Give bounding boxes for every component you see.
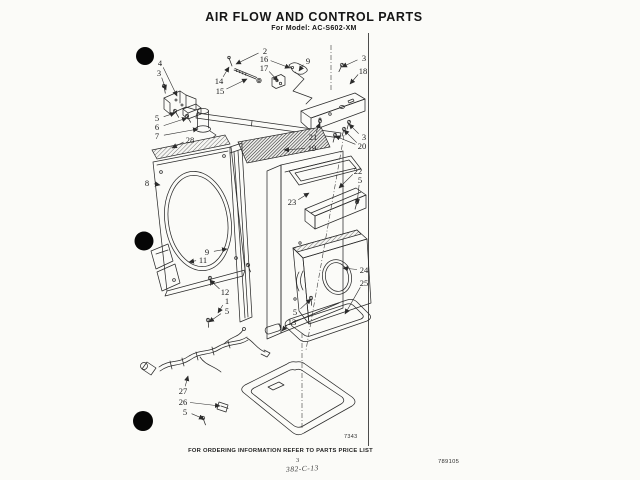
callouts-layer: 4356728821617141593182132019225239111215… xyxy=(145,46,369,419)
callout-leader-5 xyxy=(300,299,311,309)
callout-leader-3 xyxy=(342,60,358,67)
callout-leader-5 xyxy=(209,314,221,322)
callout-5: 5 xyxy=(358,175,362,185)
callout-21: 21 xyxy=(309,132,318,142)
callout-14: 14 xyxy=(215,76,224,86)
callout-leader-6 xyxy=(164,118,187,126)
callout-24: 24 xyxy=(360,265,369,275)
screw xyxy=(337,63,346,72)
callout-20: 20 xyxy=(358,141,367,151)
part-base-pan xyxy=(242,362,355,435)
callout-18: 18 xyxy=(359,66,368,76)
punch-hole xyxy=(135,232,154,251)
callout-5: 5 xyxy=(183,407,187,417)
screw xyxy=(352,200,361,209)
callout-5: 5 xyxy=(293,307,297,317)
callout-leader-9 xyxy=(299,65,303,71)
callout-leader-20 xyxy=(344,130,357,143)
callout-5: 5 xyxy=(225,306,229,316)
part-bracket-flaps xyxy=(151,244,180,291)
callout-15: 15 xyxy=(216,86,225,96)
callout-leader-9 xyxy=(214,249,227,251)
callout-25: 25 xyxy=(360,278,369,288)
part-mounting-bracket xyxy=(164,91,196,114)
callout-leader-23 xyxy=(298,193,309,200)
callout-8: 8 xyxy=(145,178,149,188)
callout-leader-22 xyxy=(339,174,353,188)
callout-leader-13 xyxy=(282,325,287,331)
handwritten-reference: 382-C-13 xyxy=(286,463,319,474)
part-inner-frame xyxy=(289,156,361,185)
callout-1: 1 xyxy=(225,296,229,306)
callout-23: 23 xyxy=(288,197,297,207)
callout-3: 3 xyxy=(362,53,366,63)
callout-leader-26 xyxy=(190,403,220,407)
screw xyxy=(339,127,348,136)
callout-leader-27 xyxy=(185,376,188,386)
callout-13: 13 xyxy=(288,317,297,327)
part-clip xyxy=(217,402,228,412)
callout-7: 7 xyxy=(155,131,159,141)
callout-27: 27 xyxy=(179,386,188,396)
callout-leader-11 xyxy=(189,261,196,262)
callout-leader-15 xyxy=(226,79,247,89)
callout-9: 9 xyxy=(306,56,310,66)
callout-leader-3 xyxy=(349,124,359,134)
part-wiring-harness xyxy=(141,328,271,376)
screw xyxy=(203,318,213,328)
callout-3: 3 xyxy=(157,68,161,78)
callout-leader-8 xyxy=(154,184,160,185)
punch-holes xyxy=(133,47,154,431)
punch-hole xyxy=(136,47,154,65)
screw xyxy=(306,296,316,306)
callout-26: 26 xyxy=(179,397,188,407)
part-wire-link xyxy=(293,72,312,104)
figure-number: 7343 xyxy=(344,434,357,440)
part-support-box xyxy=(305,188,366,229)
ordering-note: FOR ORDERING INFORMATION REFER TO PARTS … xyxy=(183,448,378,454)
callout-28: 28 xyxy=(186,135,195,145)
part-control-panel xyxy=(301,93,365,131)
callout-leader-2 xyxy=(236,53,259,64)
parts-diagram: 4356728821617141593182132019225239111215… xyxy=(0,0,640,480)
screw xyxy=(199,416,208,425)
callout-4: 4 xyxy=(158,58,163,68)
catalog-page: { "header": { "title": "AIR FLOW AND CON… xyxy=(0,0,640,480)
document-number: 789105 xyxy=(438,459,459,465)
page-number: 3 xyxy=(296,457,299,464)
callout-11: 11 xyxy=(199,255,207,265)
callout-17: 17 xyxy=(260,63,269,73)
callout-leader-14 xyxy=(223,67,229,77)
callout-leader-16 xyxy=(271,61,290,68)
part-retainer-clip xyxy=(289,63,307,74)
callout-19: 19 xyxy=(308,143,317,153)
callout-leader-20 xyxy=(335,136,355,144)
callout-leader-3 xyxy=(162,78,166,90)
part-blower-housing xyxy=(293,230,371,324)
callout-leader-18 xyxy=(350,75,358,85)
punch-hole xyxy=(133,411,153,431)
callout-leader-1 xyxy=(218,305,223,313)
